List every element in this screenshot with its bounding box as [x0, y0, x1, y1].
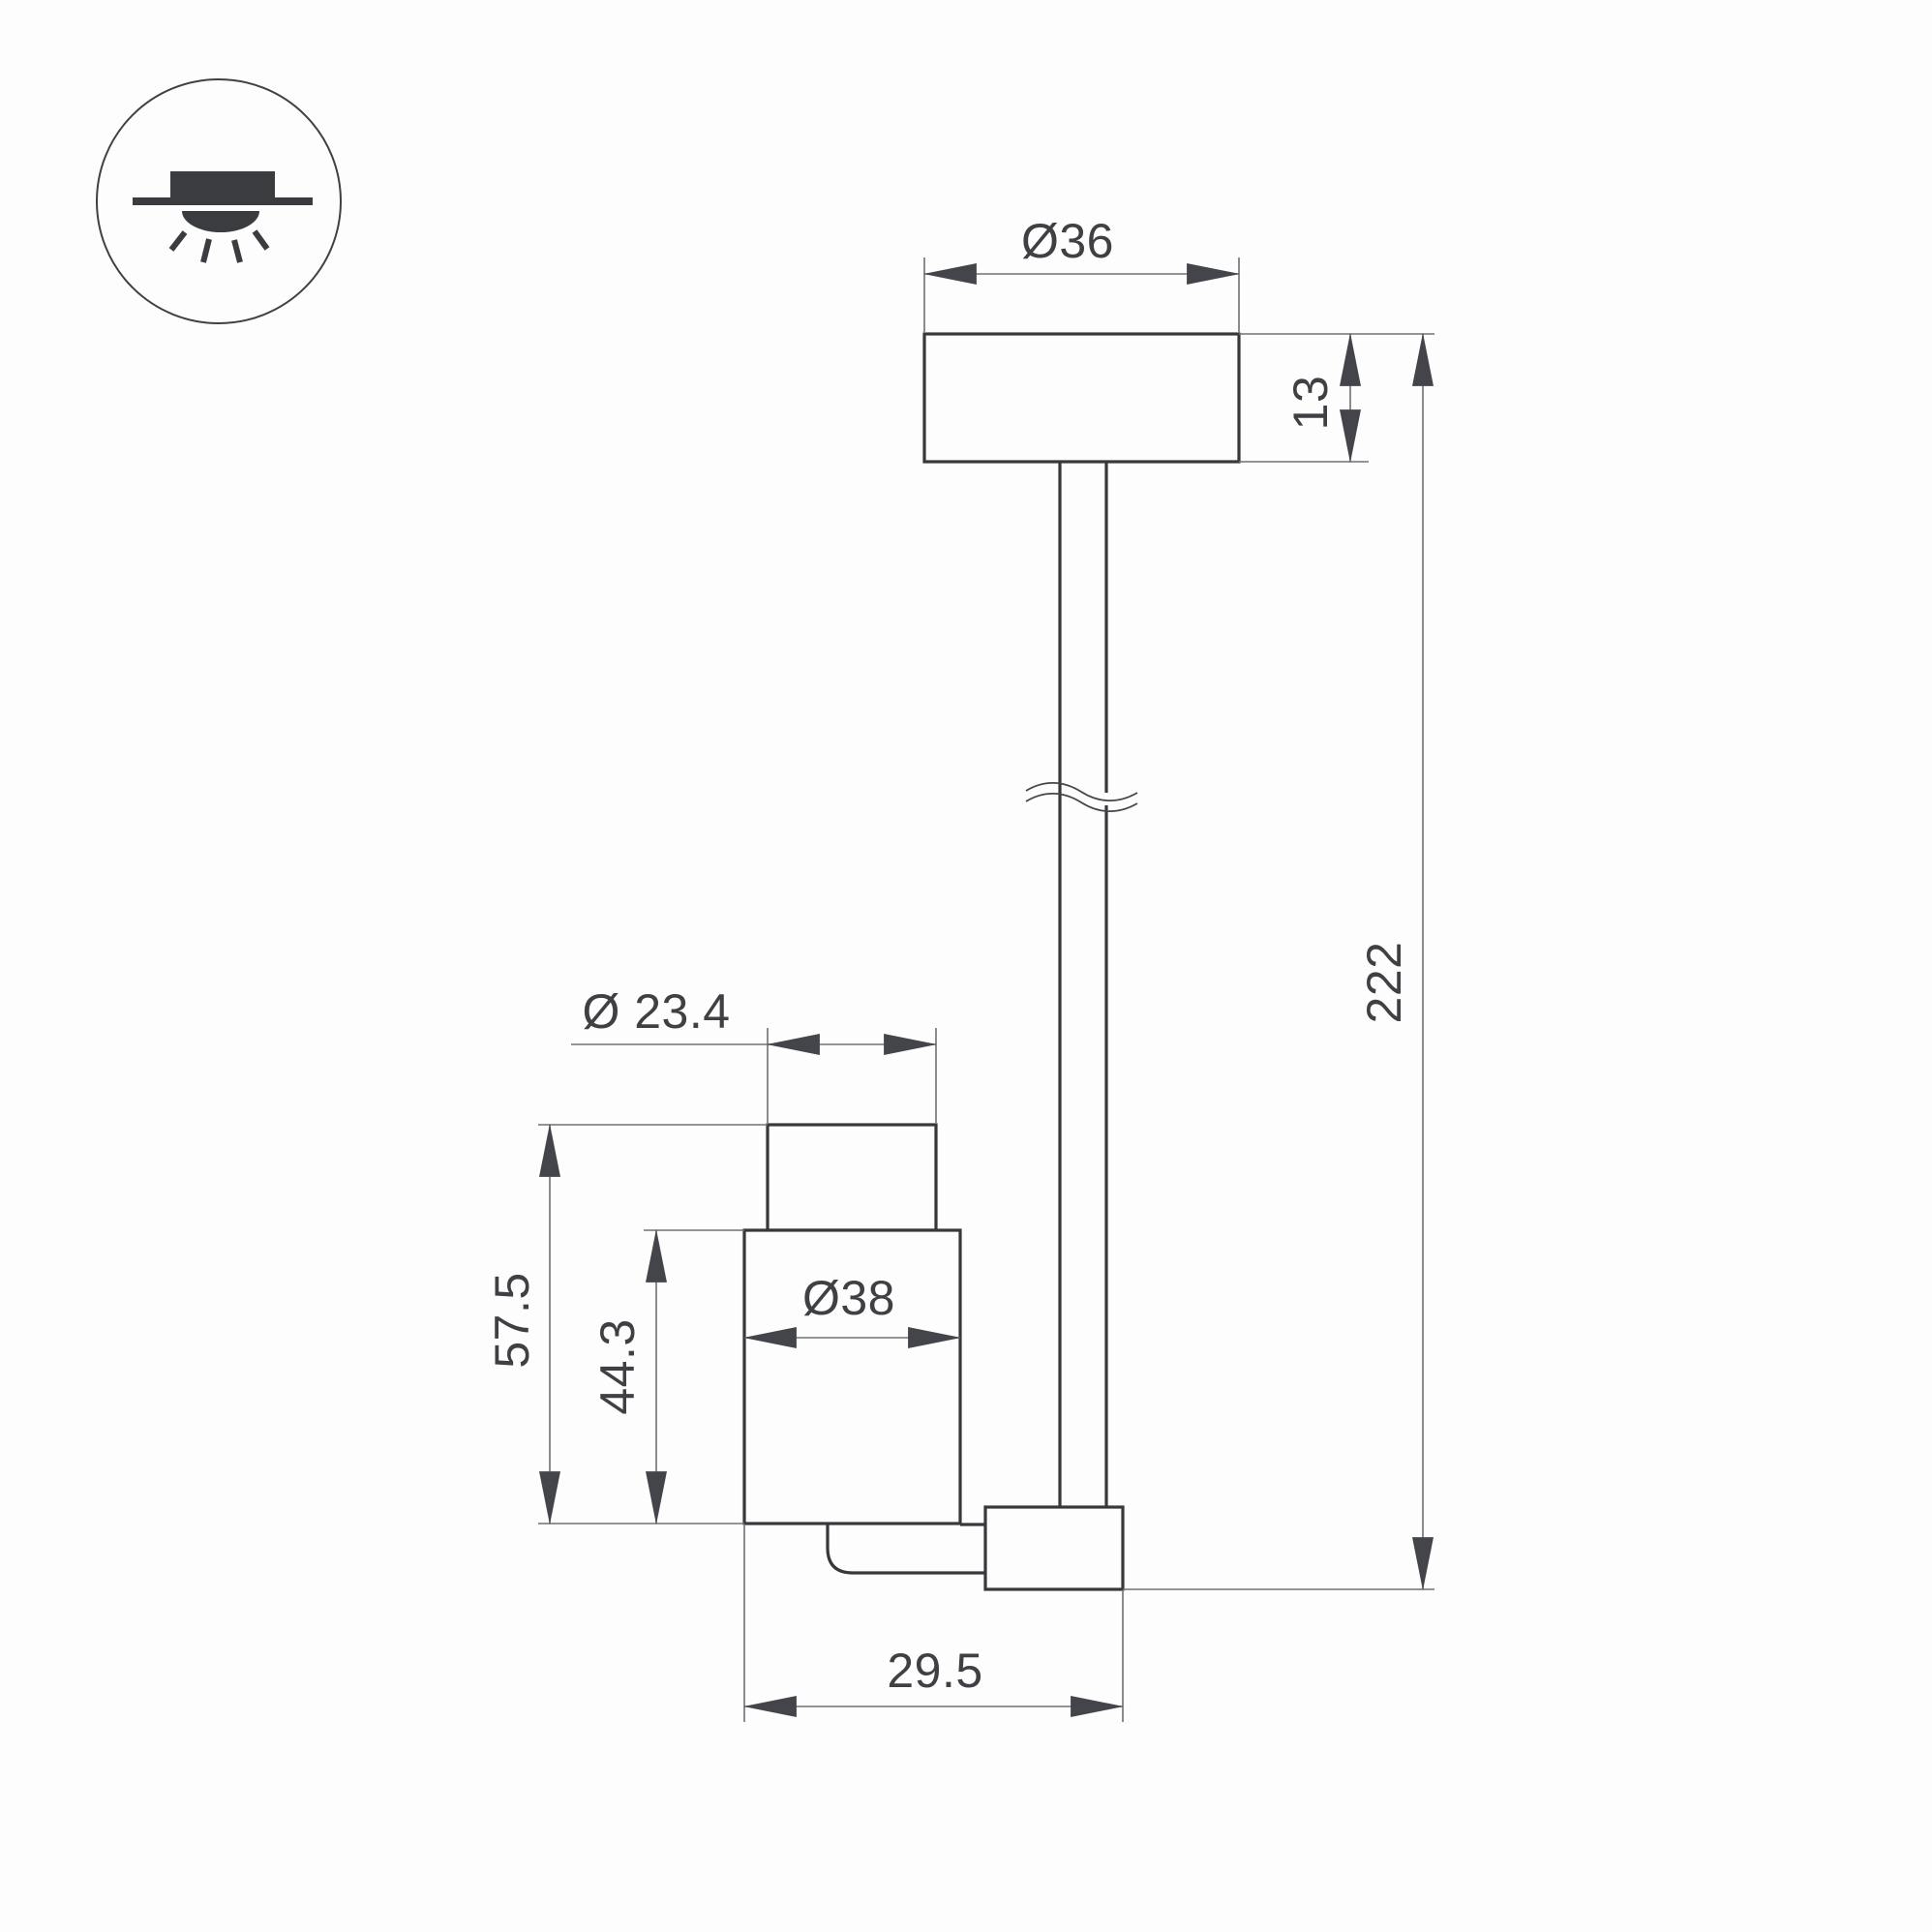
- icon-light-rays: [171, 231, 267, 262]
- elbow-arm: [828, 1524, 985, 1573]
- stem-rod: [1060, 462, 1106, 1507]
- rod-break-symbol: [1026, 783, 1137, 811]
- dim-label-body-diameter: Ø38: [802, 1271, 895, 1325]
- dim-body-height: 44.3: [590, 1230, 744, 1524]
- icon-fixture-housing: [170, 171, 275, 199]
- dim-overall-length: 222: [1123, 334, 1434, 1589]
- dim-label-body-height: 44.3: [590, 1318, 645, 1414]
- dim-label-head-depth: 29.5: [887, 1644, 982, 1698]
- dim-barrel-diameter: Ø 23.4: [571, 984, 936, 1123]
- icon-ceiling-line: [133, 197, 313, 205]
- fixture-outline: [744, 334, 1239, 1589]
- fixture-dimension-drawing: Ø36 13 222 Ø 23.4: [0, 0, 1932, 1932]
- head-barrel: [768, 1125, 936, 1230]
- rod-connector: [985, 1507, 1123, 1589]
- dim-label-canopy-height: 13: [1283, 376, 1338, 431]
- dim-label-overall-length: 222: [1357, 942, 1411, 1024]
- dim-canopy-height: 13: [1239, 334, 1434, 462]
- dim-label-canopy-diameter: Ø36: [1021, 214, 1114, 268]
- recessed-ceiling-light-icon: [97, 79, 341, 323]
- mount-canopy: [924, 334, 1239, 462]
- dim-canopy-diameter: Ø36: [924, 214, 1239, 332]
- icon-light-dome: [182, 211, 259, 232]
- dim-label-barrel-diameter: Ø 23.4: [582, 984, 730, 1039]
- technical-drawing-page: Ø36 13 222 Ø 23.4: [0, 0, 1932, 1932]
- dim-label-head-height: 57.5: [485, 1272, 539, 1368]
